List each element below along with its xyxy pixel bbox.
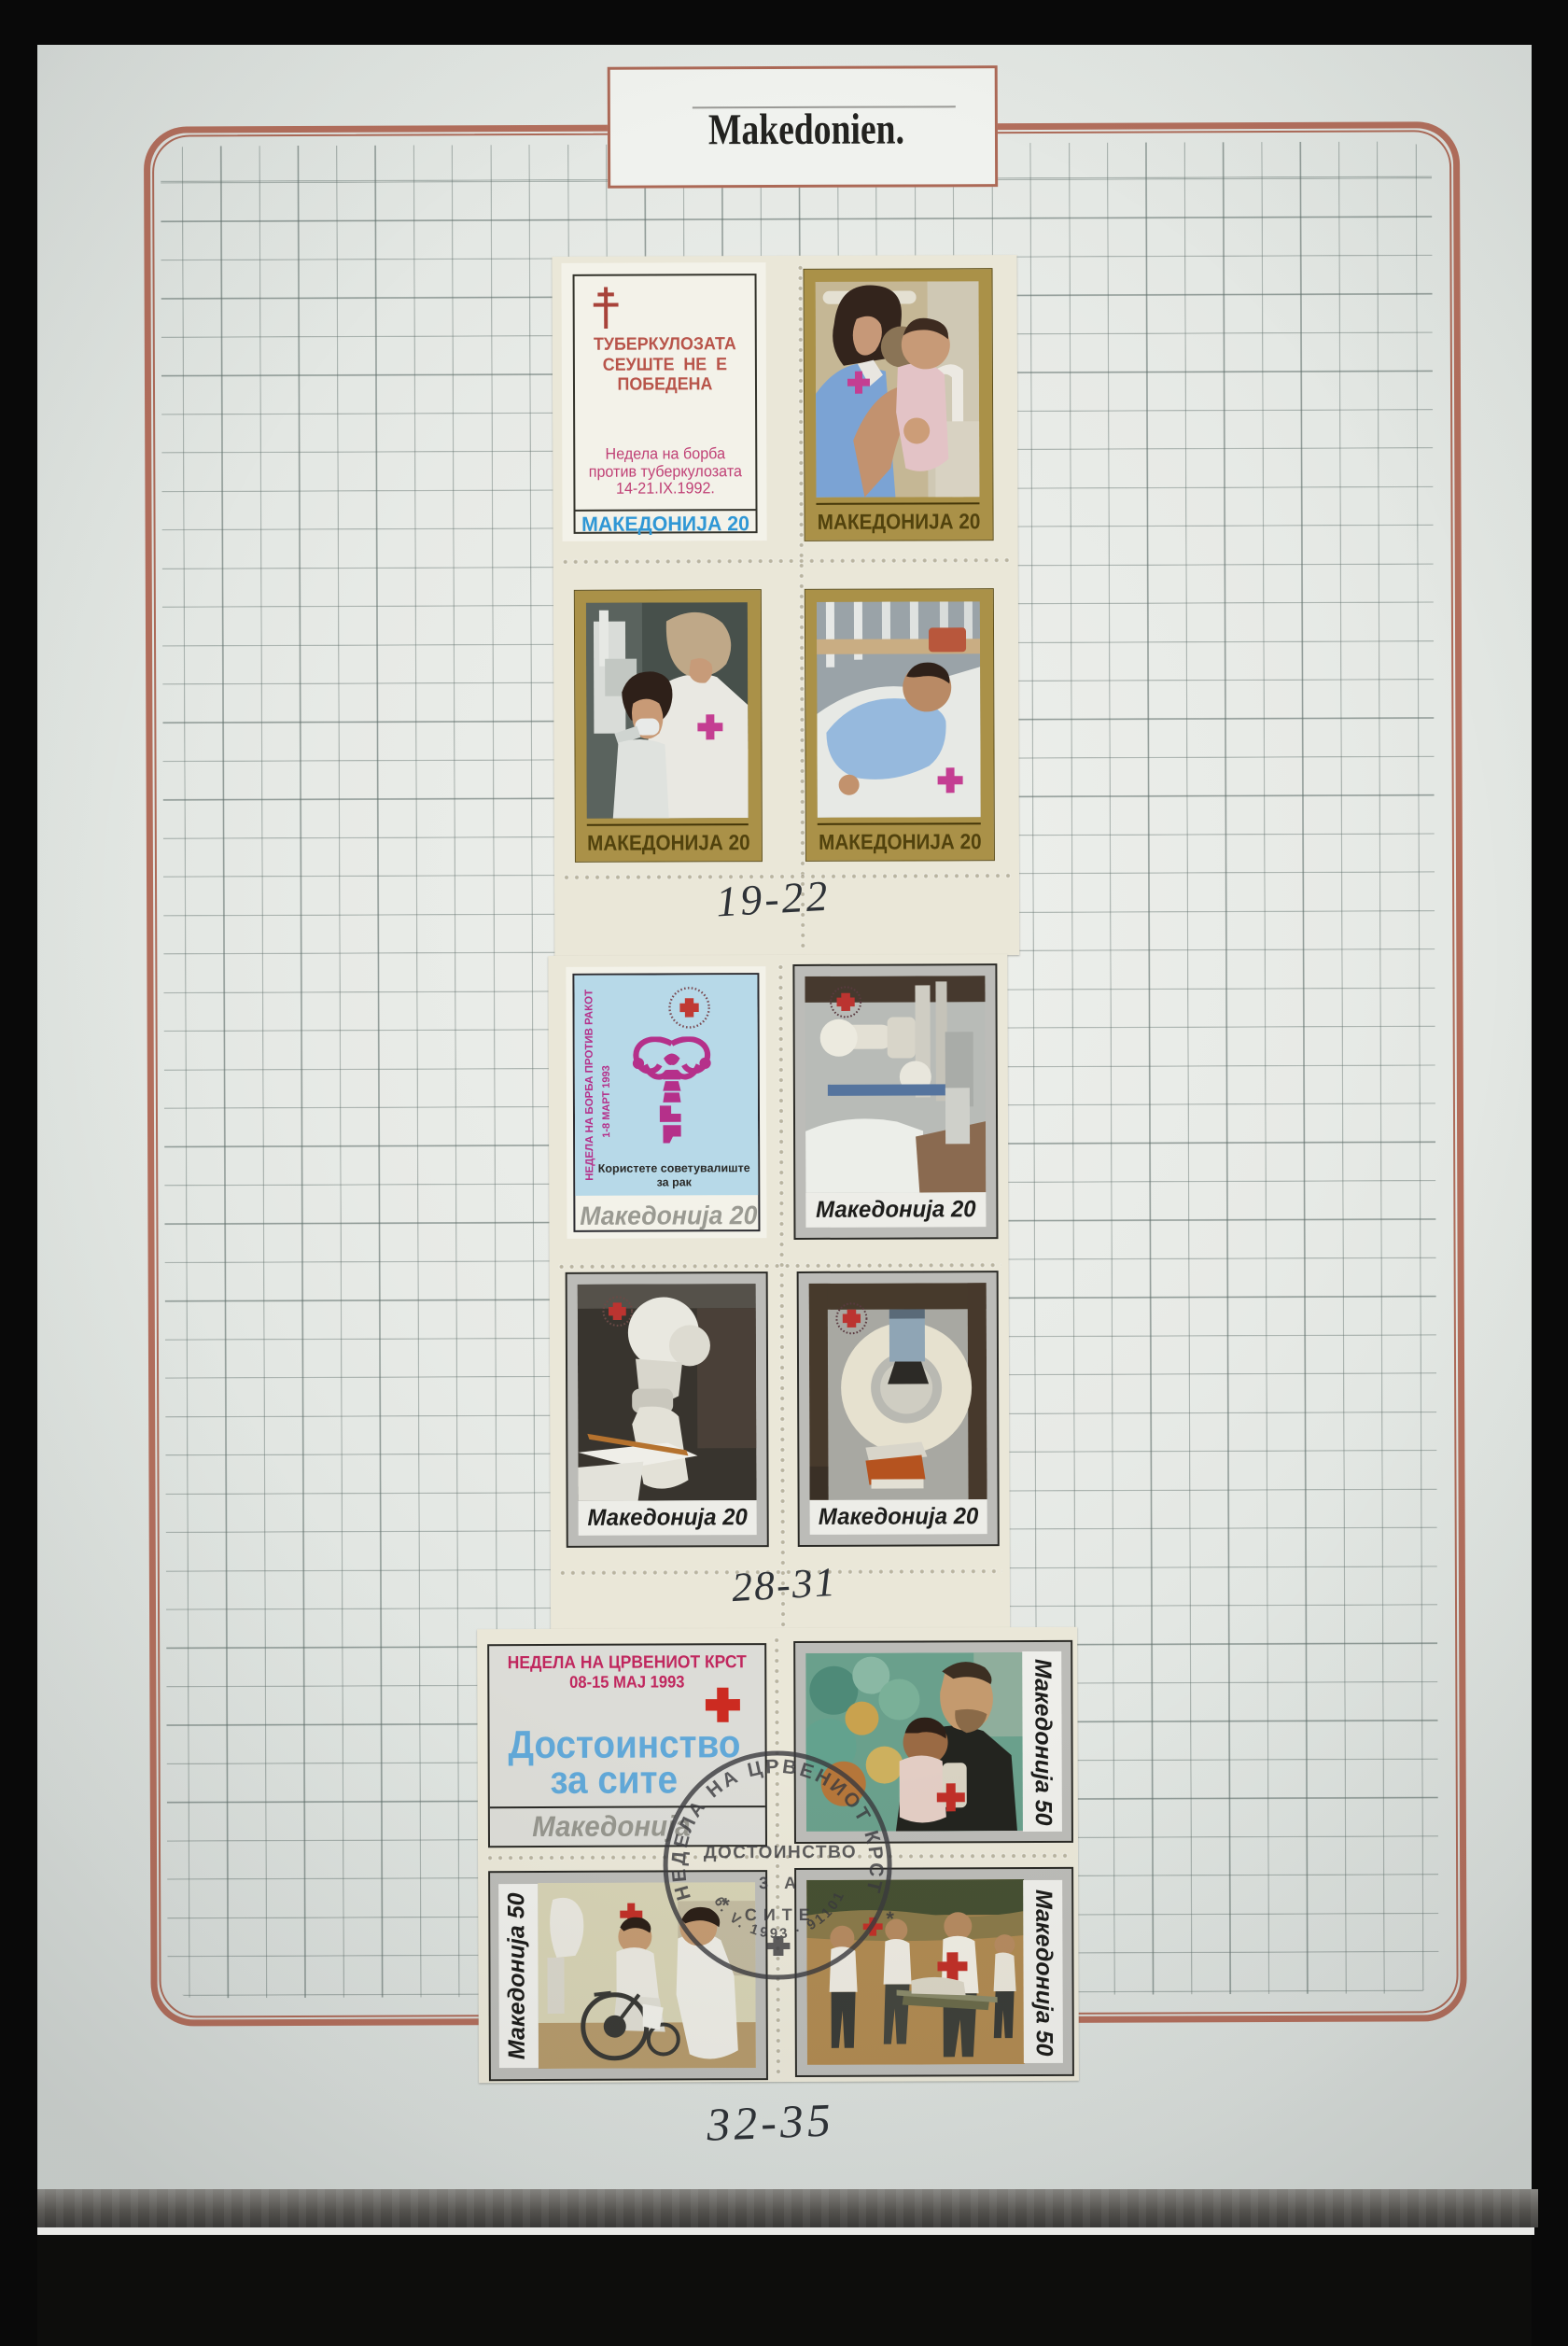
svg-text:ДОСТОИНСТВО: ДОСТОИНСТВО bbox=[704, 1843, 857, 1863]
svg-text:3 А: 3 А bbox=[759, 1874, 802, 1892]
svg-text:СИТЕ: СИТЕ bbox=[745, 1905, 817, 1924]
svg-text:*: * bbox=[721, 1893, 730, 1917]
svg-text:*: * bbox=[886, 1907, 894, 1931]
